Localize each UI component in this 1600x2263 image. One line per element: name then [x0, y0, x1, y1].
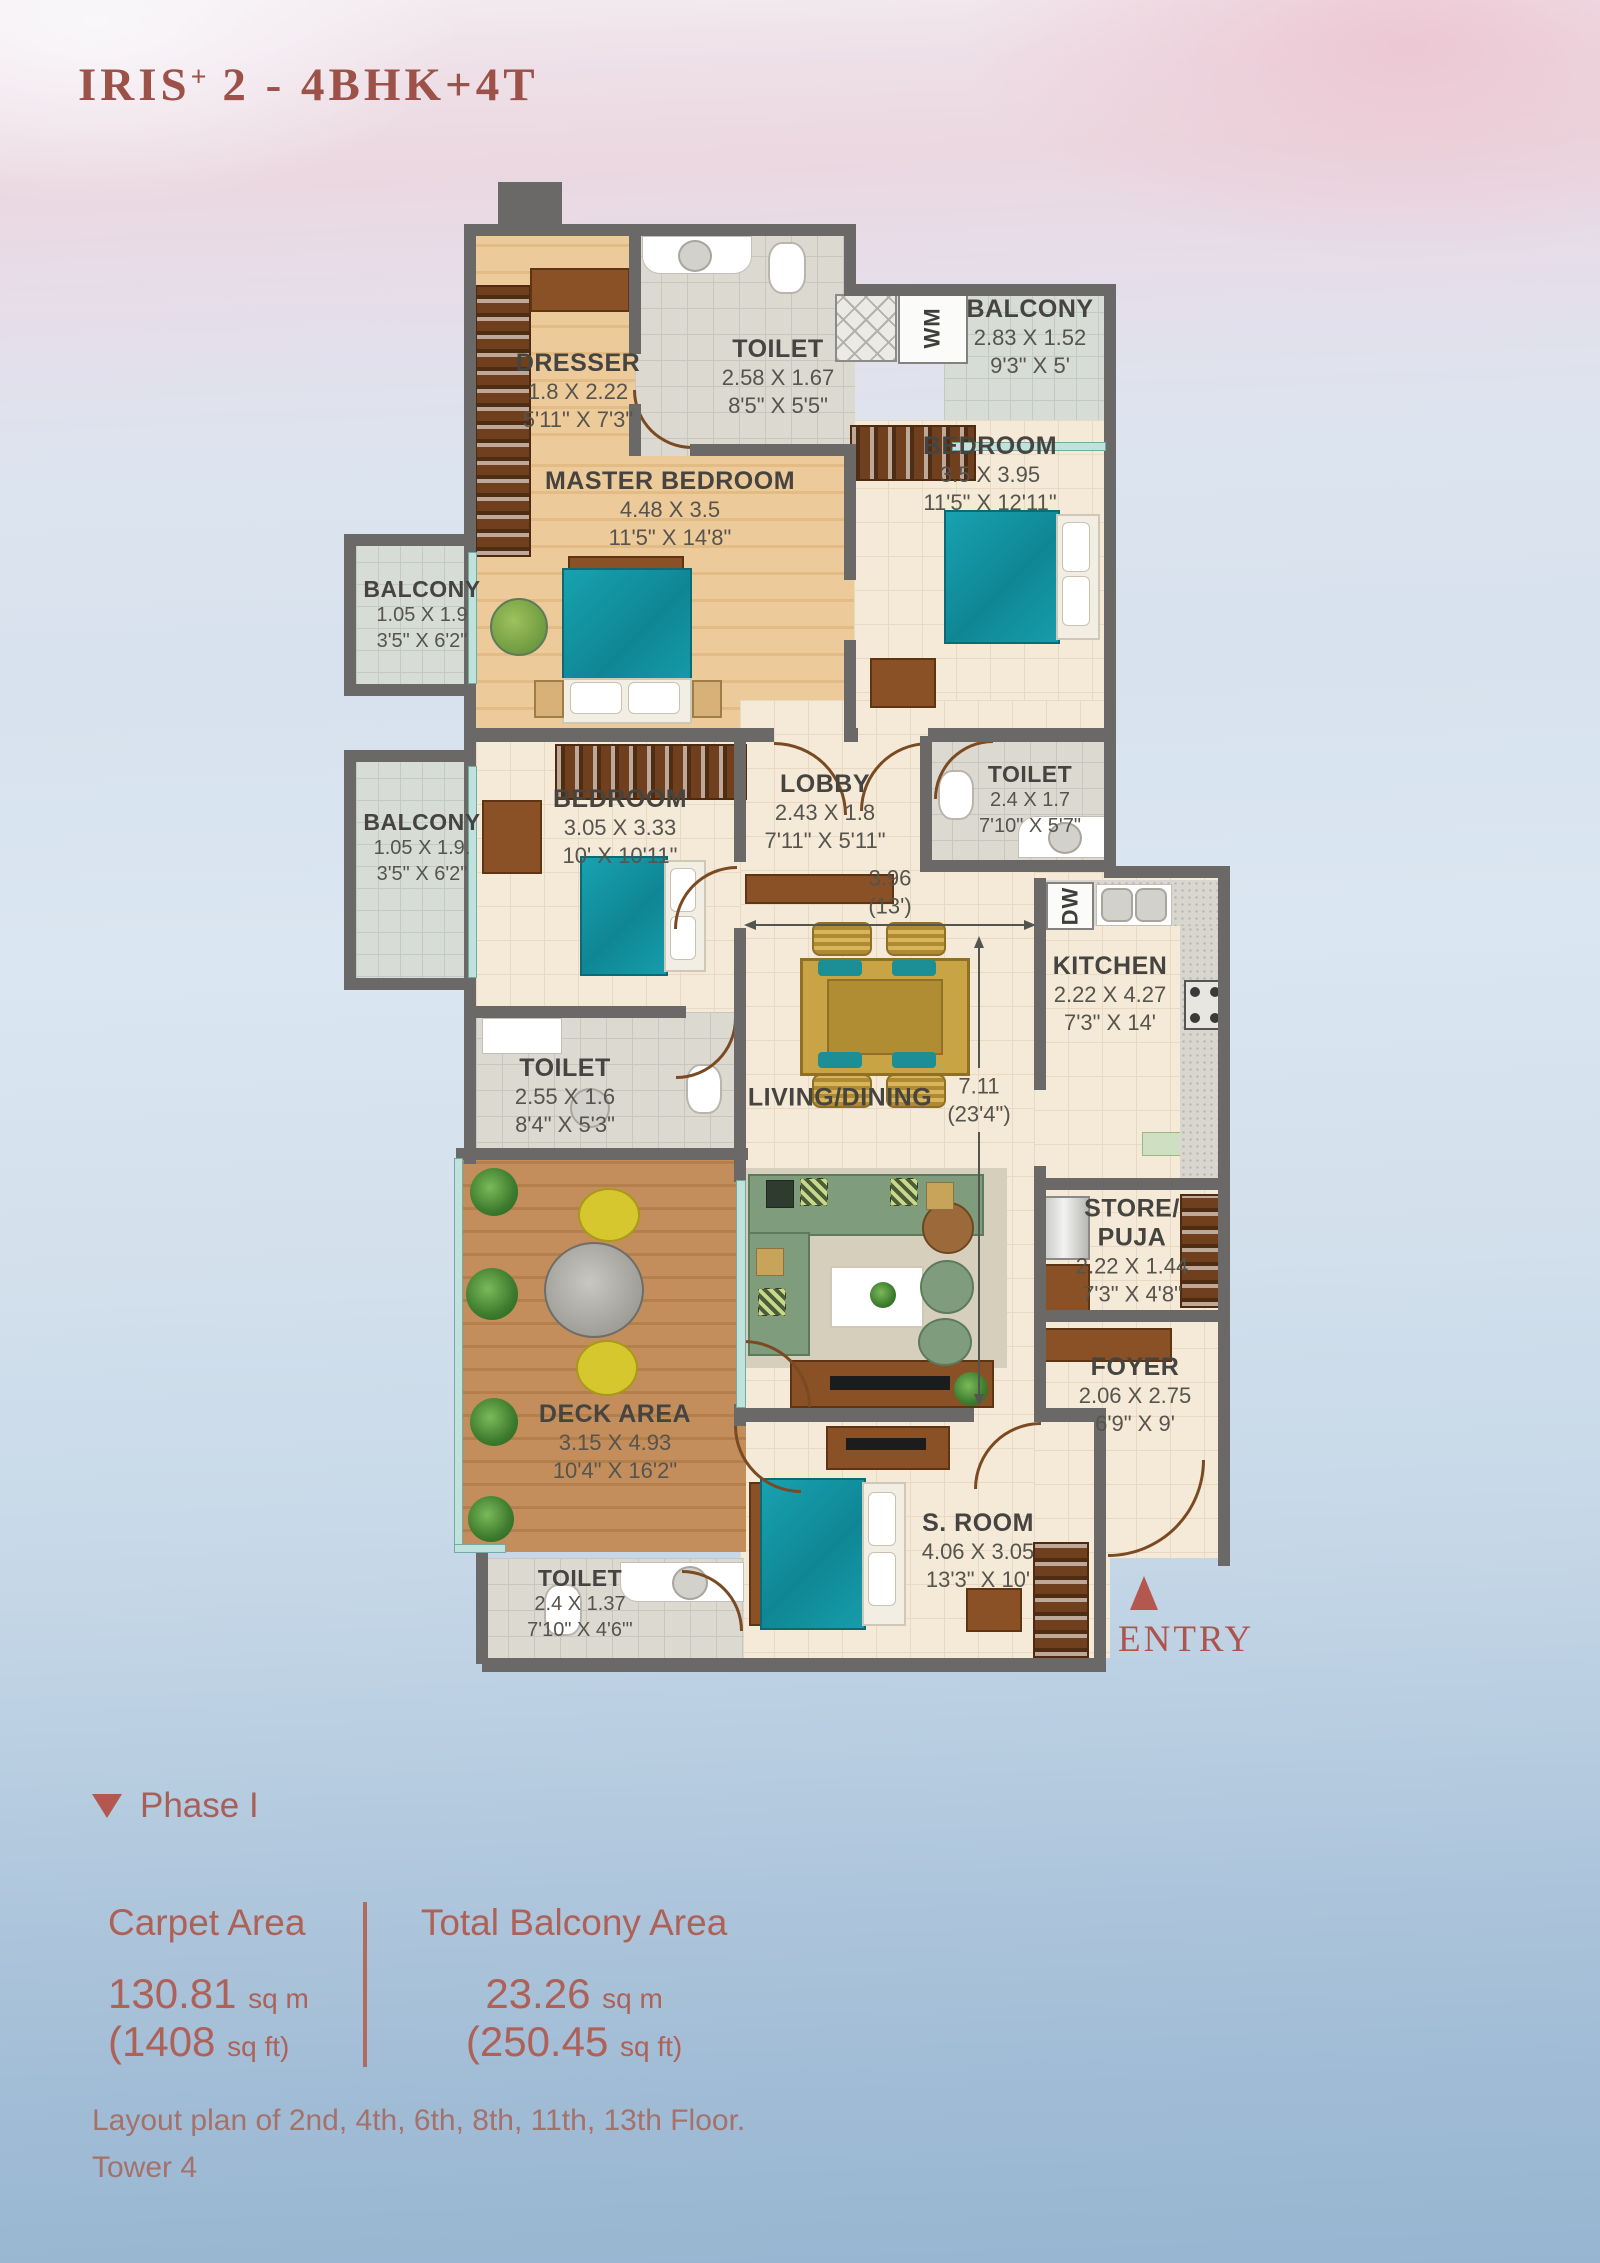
- wall: [1104, 284, 1116, 878]
- wall: [690, 444, 856, 456]
- label-toilet-center: TOILET2.4 X 1.77'10" X 5'7": [979, 761, 1081, 839]
- wall: [344, 534, 356, 696]
- arrow-left-icon: [744, 920, 756, 930]
- phase-row: Phase I: [92, 1786, 259, 1826]
- wall: [1034, 1322, 1046, 1422]
- area-summary: Carpet Area 130.81 sq m (1408 sq ft) Tot…: [108, 1902, 727, 2067]
- deck-plant: [468, 1496, 514, 1542]
- wall: [844, 640, 856, 742]
- wall: [470, 1006, 686, 1018]
- label-balcony-left-upper: BALCONY1.05 X 1.93'5" X 6'2": [363, 576, 480, 654]
- wall: [1104, 866, 1230, 878]
- deck-sliding-door: [736, 1180, 746, 1408]
- sofa-cushion: [890, 1178, 918, 1206]
- dim-line-vertical-upper: [978, 942, 980, 1068]
- wall: [920, 736, 932, 872]
- label-foyer: FOYER2.06 X 2.756'9" X 9': [1079, 1353, 1192, 1439]
- sofa-cushion: [758, 1288, 786, 1316]
- wall: [734, 1408, 974, 1422]
- dining-seat: [892, 960, 936, 976]
- wall: [344, 750, 464, 762]
- label-living-dining: LIVING/DINING: [748, 1084, 932, 1113]
- service-shaft: [835, 294, 897, 362]
- wall: [344, 750, 356, 990]
- master-bed-pillow: [570, 682, 622, 714]
- tv-sroom: [846, 1438, 926, 1450]
- washing-machine: WM: [898, 292, 968, 364]
- dim-label-horizontal: 3.96(13'): [868, 865, 911, 920]
- coffee-table-plant: [870, 1282, 896, 1308]
- dining-chair: [812, 922, 872, 956]
- deck-plant: [470, 1168, 518, 1216]
- toilet-midleft-shower: [482, 1018, 562, 1054]
- phase-triangle-icon: [92, 1794, 122, 1818]
- label-master-toilet: TOILET2.58 X 1.678'5" X 5'5": [722, 335, 835, 421]
- footer-line1: Layout plan of 2nd, 4th, 6th, 8th, 11th,…: [92, 2098, 745, 2145]
- arrow-up-icon: [974, 936, 984, 948]
- sroom-pillow: [868, 1492, 896, 1546]
- carpet-area-title: Carpet Area: [108, 1902, 309, 1944]
- wall: [1034, 1310, 1230, 1322]
- deck-chair-yellow: [576, 1340, 638, 1396]
- wall: [344, 534, 464, 546]
- sroom-wardrobe: [1033, 1542, 1089, 1658]
- wall: [734, 742, 746, 862]
- master-toilet-wc: [768, 242, 806, 294]
- wall: [734, 1156, 746, 1182]
- label-bedroom-mid: BEDROOM3.05 X 3.3310' X 10'11": [553, 785, 687, 871]
- deck-table: [544, 1242, 644, 1338]
- sofa-cushion: [766, 1180, 794, 1208]
- label-lobby: LOBBY2.43 X 1.87'11" X 5'11": [764, 770, 885, 856]
- wall: [629, 224, 641, 354]
- area-divider: [363, 1902, 367, 2067]
- label-s-room: S. ROOM4.06 X 3.0513'3" X 10': [922, 1509, 1035, 1595]
- bedroom-tr-desk: [870, 658, 936, 708]
- bedroom-mid-bed-blanket: [580, 856, 668, 976]
- label-kitchen: KITCHEN2.22 X 4.277'3" X 14': [1053, 952, 1168, 1038]
- master-toilet-basin: [678, 240, 712, 272]
- wall: [464, 224, 476, 1164]
- balcony-area-block: Total Balcony Area 23.26 sq m (250.45 sq…: [421, 1902, 727, 2067]
- dim-label-vertical: 7.11(23'4"): [947, 1073, 1010, 1128]
- carpet-area-metric: 130.81 sq m: [108, 1970, 309, 2018]
- deck-rail-left: [454, 1158, 463, 1552]
- bedroom-tr-pillow: [1062, 522, 1090, 572]
- sink-basin-left: [1101, 888, 1133, 922]
- wall: [456, 1148, 748, 1160]
- wall: [1034, 1178, 1230, 1190]
- deck-chair-yellow: [578, 1188, 640, 1242]
- balcony-area-imperial: (250.45 sq ft): [421, 2018, 727, 2066]
- master-nightstand: [692, 680, 722, 718]
- dresser-cabinet: [530, 268, 630, 312]
- footer-line2: Tower 4: [92, 2145, 745, 2192]
- sofa-cushion: [800, 1178, 828, 1206]
- wall: [734, 1012, 746, 1152]
- bedroom-mid-desk: [482, 800, 542, 874]
- sroom-pillow: [868, 1552, 896, 1606]
- pouf: [920, 1260, 974, 1314]
- wall: [344, 684, 464, 696]
- carpet-area-imperial: (1408 sq ft): [108, 2018, 309, 2066]
- dining-seat: [818, 1052, 862, 1068]
- wall: [734, 928, 746, 1012]
- wall: [498, 182, 562, 226]
- entry-label: ENTRY: [1118, 1618, 1254, 1661]
- entry-arrow-icon: [1130, 1576, 1158, 1610]
- dim-line-vertical-lower: [978, 1132, 980, 1404]
- deck-plant: [470, 1398, 518, 1446]
- carpet-area-block: Carpet Area 130.81 sq m (1408 sq ft): [108, 1902, 309, 2067]
- label-balcony-left-lower: BALCONY1.05 X 1.9.3'5" X 6'2": [363, 809, 480, 887]
- wall: [344, 978, 464, 990]
- title-superscript: +: [191, 62, 207, 93]
- wall: [928, 728, 1116, 742]
- label-master-bedroom: MASTER BEDROOM4.48 X 3.511'5" X 14'8": [545, 467, 795, 553]
- balcony-area-title: Total Balcony Area: [421, 1902, 727, 1944]
- arrow-right-icon: [1024, 920, 1036, 930]
- sofa-cushion: [756, 1248, 784, 1276]
- label-dresser: DRESSER1.8 X 2.225'11" X 7'3": [516, 349, 640, 435]
- sroom-bed-blanket: [760, 1478, 866, 1630]
- arrow-down-icon: [974, 1394, 984, 1406]
- dining-seat: [892, 1052, 936, 1068]
- wall: [844, 444, 856, 580]
- wall: [1218, 866, 1230, 1566]
- tv-living: [830, 1376, 950, 1390]
- dining-seat: [818, 960, 862, 976]
- wall: [1034, 1190, 1046, 1318]
- wall: [482, 1658, 1106, 1672]
- wall: [920, 860, 1116, 872]
- label-store-puja: STORE/PUJA 2.22 X 1.447'3" X 4'8": [1076, 1195, 1189, 1310]
- dining-chair: [886, 922, 946, 956]
- balcony-area-metric: 23.26 sq m: [421, 1970, 727, 2018]
- phase-label: Phase I: [140, 1786, 259, 1826]
- wall: [464, 728, 774, 742]
- label-bedroom-tr: BEDROOM3.5 X 3.9511'5" X 12'11": [923, 432, 1057, 518]
- deck-plant: [466, 1268, 518, 1320]
- dishwasher: DW: [1046, 882, 1094, 930]
- sink-basin-right: [1135, 888, 1167, 922]
- label-balcony-tr: BALCONY2.83 X 1.529'3" X 5': [966, 295, 1093, 381]
- label-deck-area: DECK AREA3.15 X 4.9310'4" X 16'2": [539, 1400, 691, 1486]
- wall: [844, 728, 858, 742]
- wall: [476, 1552, 488, 1664]
- deck-rail-bottom: [454, 1544, 506, 1553]
- footer-note: Layout plan of 2nd, 4th, 6th, 8th, 11th,…: [92, 2098, 745, 2191]
- page-title: IRIS+ 2 - 4BHK+4T: [78, 58, 539, 112]
- bedroom-tr-bed-blanket: [944, 510, 1060, 644]
- master-beanbag: [490, 598, 548, 656]
- wall: [1034, 878, 1046, 1090]
- dim-line-horizontal: [750, 924, 1030, 926]
- floor-plan: DW WM: [330, 180, 1240, 1680]
- wall: [1094, 1408, 1106, 1658]
- label-toilet-bottom: TOILET2.4 X 1.377'10" X 4'6"': [527, 1565, 633, 1643]
- bedroom-tr-pillow: [1062, 576, 1090, 626]
- label-toilet-midleft: TOILET2.55 X 1.68'4" X 5'3": [515, 1054, 615, 1140]
- pouf: [918, 1318, 972, 1366]
- sofa-cushion: [926, 1182, 954, 1210]
- master-bed-pillow: [628, 682, 680, 714]
- master-nightstand: [534, 680, 564, 718]
